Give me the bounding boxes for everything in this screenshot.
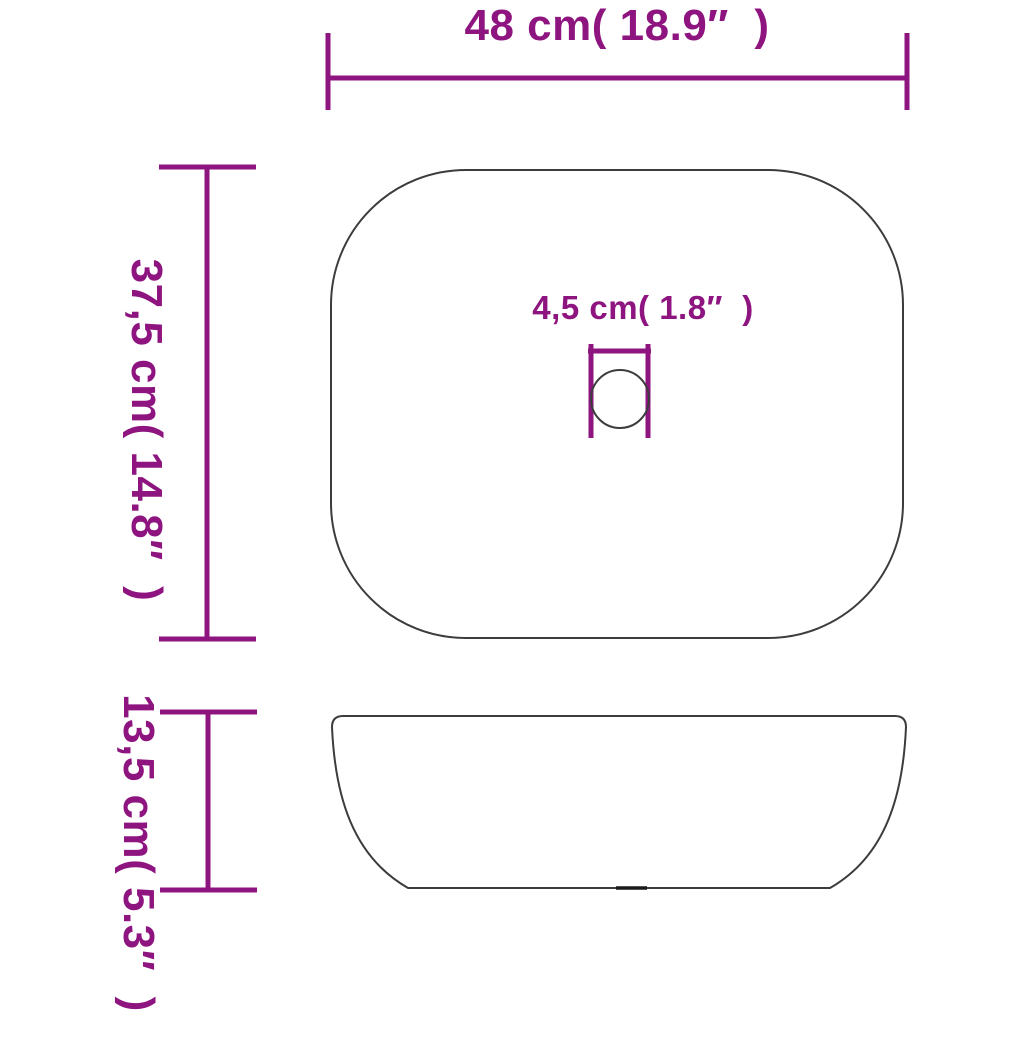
depth-dimension-label: 37,5 cm( 14.8″ ) [122, 220, 170, 640]
drain-dimension-bracket [588, 344, 651, 438]
height-dimension-label: 13,5 cm( 5.3″ ) [114, 643, 162, 1063]
basin-top-view-outline [331, 170, 903, 638]
height-dimension [160, 712, 257, 890]
width-dimension-label: 48 cm( 18.9″ ) [327, 2, 907, 50]
product-dimension-diagram: 48 cm( 18.9″ ) 37,5 cm( 14.8″ ) 4,5 cm( … [0, 0, 1024, 1024]
drain-dimension-label: 4,5 cm( 1.8″ ) [443, 288, 843, 328]
basin-side-view-outline [332, 716, 906, 888]
drain-hole-circle [591, 370, 649, 428]
depth-dimension [159, 167, 256, 640]
